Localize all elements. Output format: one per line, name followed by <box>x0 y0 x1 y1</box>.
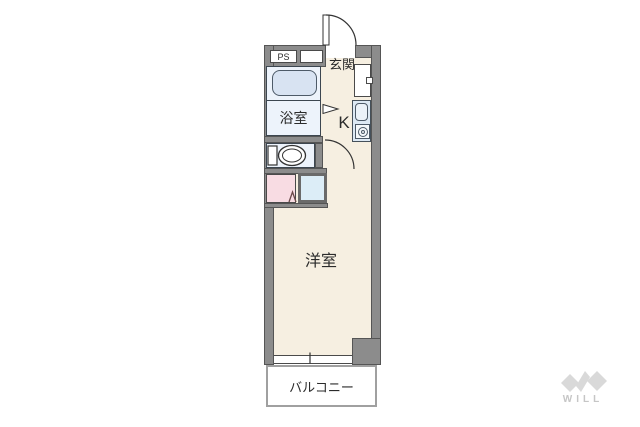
wall-toilet-right <box>315 143 323 168</box>
main-room-label: 洋室 <box>291 249 351 269</box>
entrance-door-swing-arc <box>326 15 356 45</box>
entrance-door-leaf <box>323 15 329 45</box>
sliding-window <box>274 355 352 364</box>
bathroom-divider <box>266 100 321 101</box>
burner-ring-icon <box>358 127 368 137</box>
burner-dot-icon <box>361 130 365 134</box>
entrance-label: 玄関 <box>320 55 364 71</box>
wall-bottom-right-chunk <box>352 338 381 365</box>
cabinet-handle <box>366 77 373 84</box>
pipe-space-label: PS <box>271 51 296 62</box>
will-logo-text: WILL <box>558 394 608 405</box>
bathroom-label: 浴室 <box>266 104 321 132</box>
washing-machine-pan <box>298 173 327 203</box>
bathtub <box>272 70 317 96</box>
kitchen-label: K <box>333 112 355 134</box>
wall-bath-toilet <box>264 136 323 143</box>
balcony-label: バルコニー <box>268 367 375 405</box>
wall-nook-room <box>264 203 328 208</box>
toilet-room <box>266 143 315 168</box>
pipe-space-box: PS <box>270 50 297 63</box>
balcony: バルコニー <box>266 365 377 407</box>
floor-plan-canvas: PS 浴室 バルコニー 玄関 K 洋室 <box>0 0 640 427</box>
kitchen-sink <box>355 103 368 121</box>
wall-right <box>371 45 381 365</box>
vanity-counter <box>266 174 296 203</box>
stove-burner <box>355 124 370 139</box>
